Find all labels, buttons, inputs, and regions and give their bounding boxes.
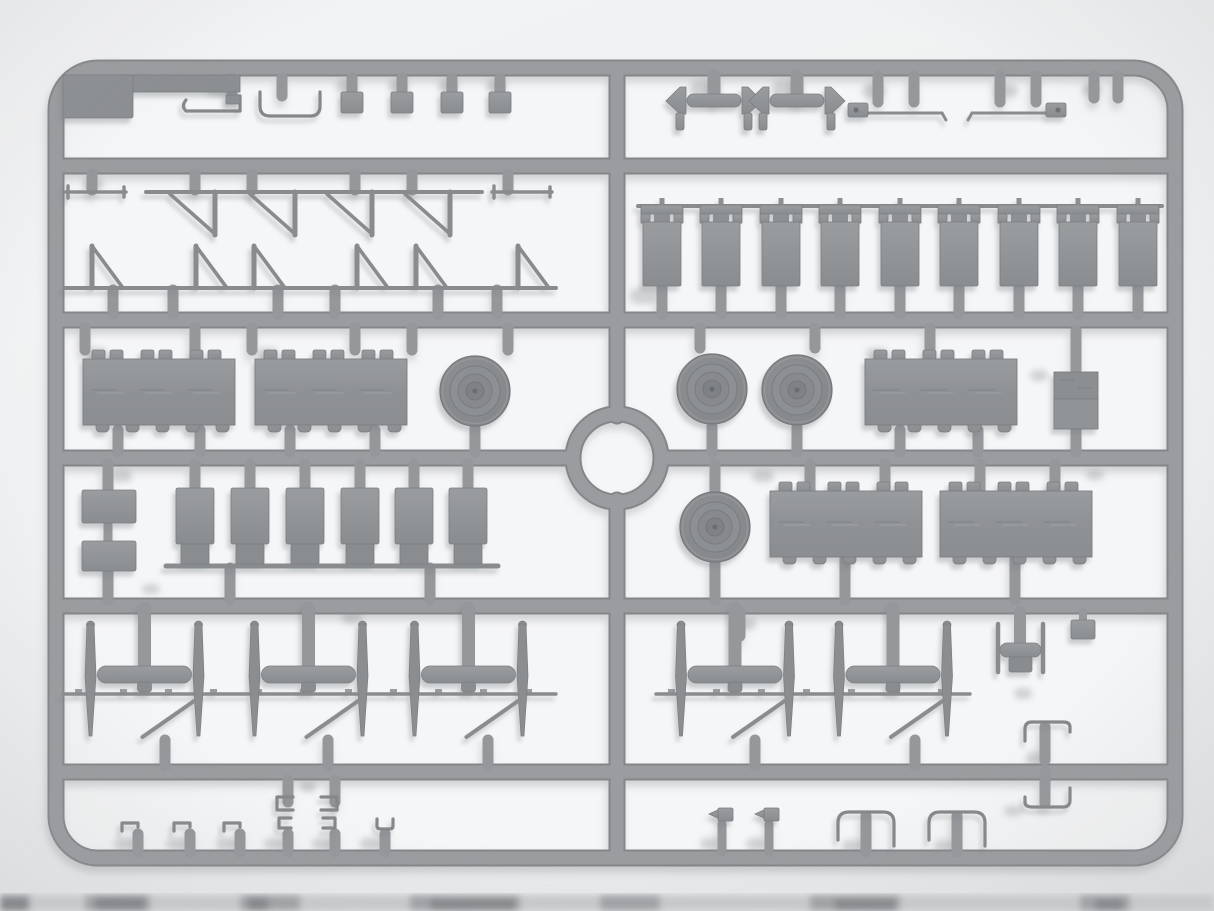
next-sprue-strip (0, 895, 1214, 911)
sprue-photo (0, 0, 1214, 911)
photo-canvas (0, 0, 1214, 911)
vignette (0, 0, 1214, 911)
